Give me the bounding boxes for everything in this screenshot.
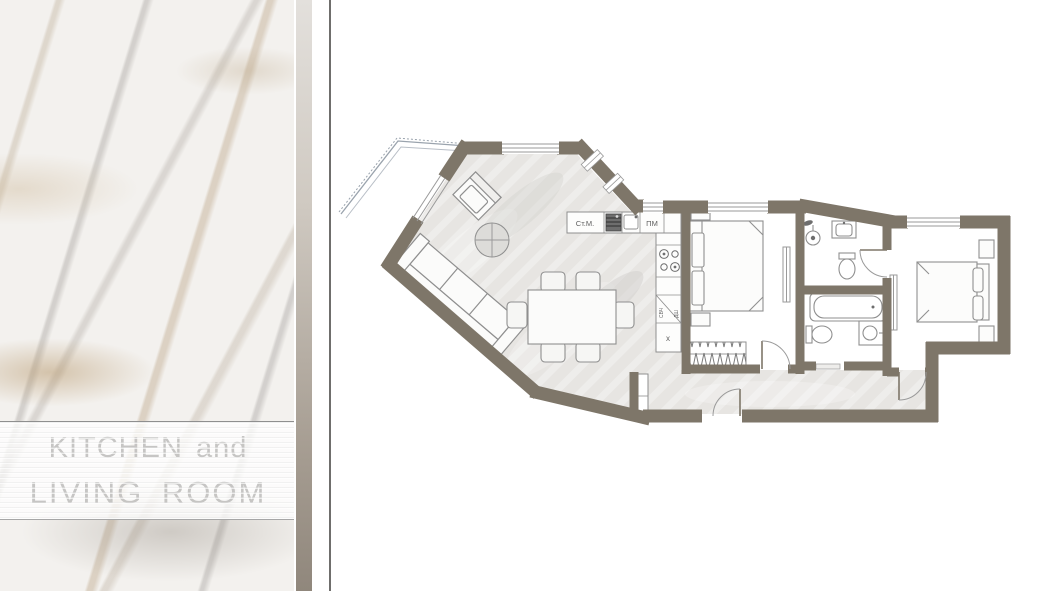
sink-icon: [859, 321, 885, 345]
slide-title-block: KITCHEN and LIVING ROOM: [0, 421, 296, 520]
kitchen-counter: Ст.М. ПМ: [567, 212, 681, 233]
shower-icon: [803, 219, 820, 245]
kitchen-sink-icon: [624, 215, 638, 229]
bed-1: [689, 209, 763, 326]
slide-title-line2: LIVING ROOM: [30, 470, 267, 516]
bathroom1-door: [860, 250, 887, 277]
washing-machine-label: Ст.М.: [576, 219, 594, 228]
toilet-icon: [806, 326, 832, 343]
washing-machine-icon: [606, 214, 621, 231]
bedroom2-window: [907, 215, 960, 228]
living-window: [502, 141, 559, 154]
toilet-icon: [839, 253, 855, 279]
kitchen-window: [643, 200, 663, 213]
coffee-table: [475, 223, 509, 257]
bathroom-1: [803, 219, 856, 279]
slide-title-line1: KITCHEN and: [49, 426, 248, 470]
oven-label: ДШ: [674, 310, 680, 318]
bathroom-2: [806, 293, 886, 369]
kitchen-column: СВЧ ДШ х: [656, 233, 681, 352]
sink-icon: [832, 221, 856, 238]
dishwasher-label: ПМ: [646, 219, 658, 228]
presentation-slide: Ст.М. ПМ СВЧ ДШ х: [0, 0, 1050, 591]
fridge-label: х: [666, 334, 670, 343]
wardrobe: [688, 342, 746, 367]
bathtub-icon: [810, 293, 886, 321]
marble-texture-panel: KITCHEN and LIVING ROOM: [0, 0, 310, 591]
vertical-divider: [329, 0, 331, 591]
bed-2: [917, 240, 994, 344]
bedroom1-door: [762, 341, 790, 369]
panel-edge-bar: [294, 0, 312, 591]
door-mat: [816, 364, 840, 369]
bedroom1-window: [708, 200, 768, 213]
microwave-label: СВЧ: [659, 308, 665, 318]
